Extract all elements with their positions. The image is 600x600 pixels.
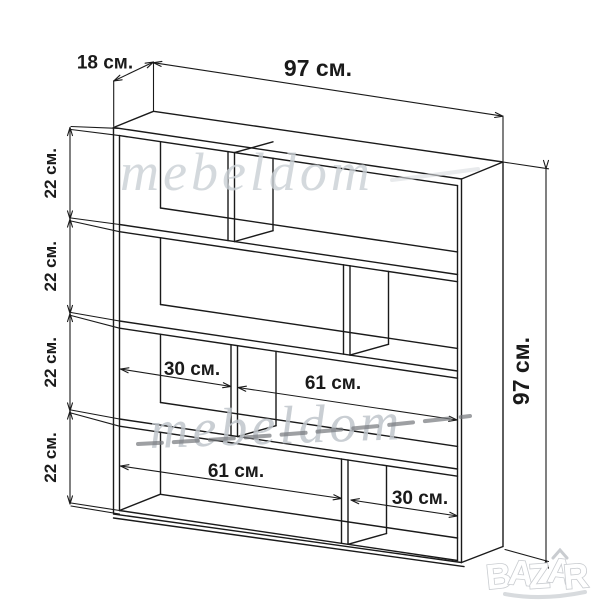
svg-text:97 см.: 97 см. bbox=[508, 337, 534, 405]
svg-text:61 см.: 61 см. bbox=[208, 461, 264, 482]
svg-text:mebeldom: mebeldom bbox=[120, 142, 374, 202]
svg-text:30 см.: 30 см. bbox=[392, 488, 448, 509]
svg-text:61 см.: 61 см. bbox=[305, 373, 361, 394]
svg-text:97 см.: 97 см. bbox=[284, 55, 352, 81]
svg-text:22 см.: 22 см. bbox=[41, 432, 60, 482]
svg-text:18 см.: 18 см. bbox=[77, 53, 133, 74]
svg-text:22 см.: 22 см. bbox=[41, 148, 60, 198]
svg-text:30 см.: 30 см. bbox=[164, 359, 220, 380]
svg-text:22 см.: 22 см. bbox=[41, 337, 60, 387]
svg-text:22 см.: 22 см. bbox=[41, 241, 60, 291]
